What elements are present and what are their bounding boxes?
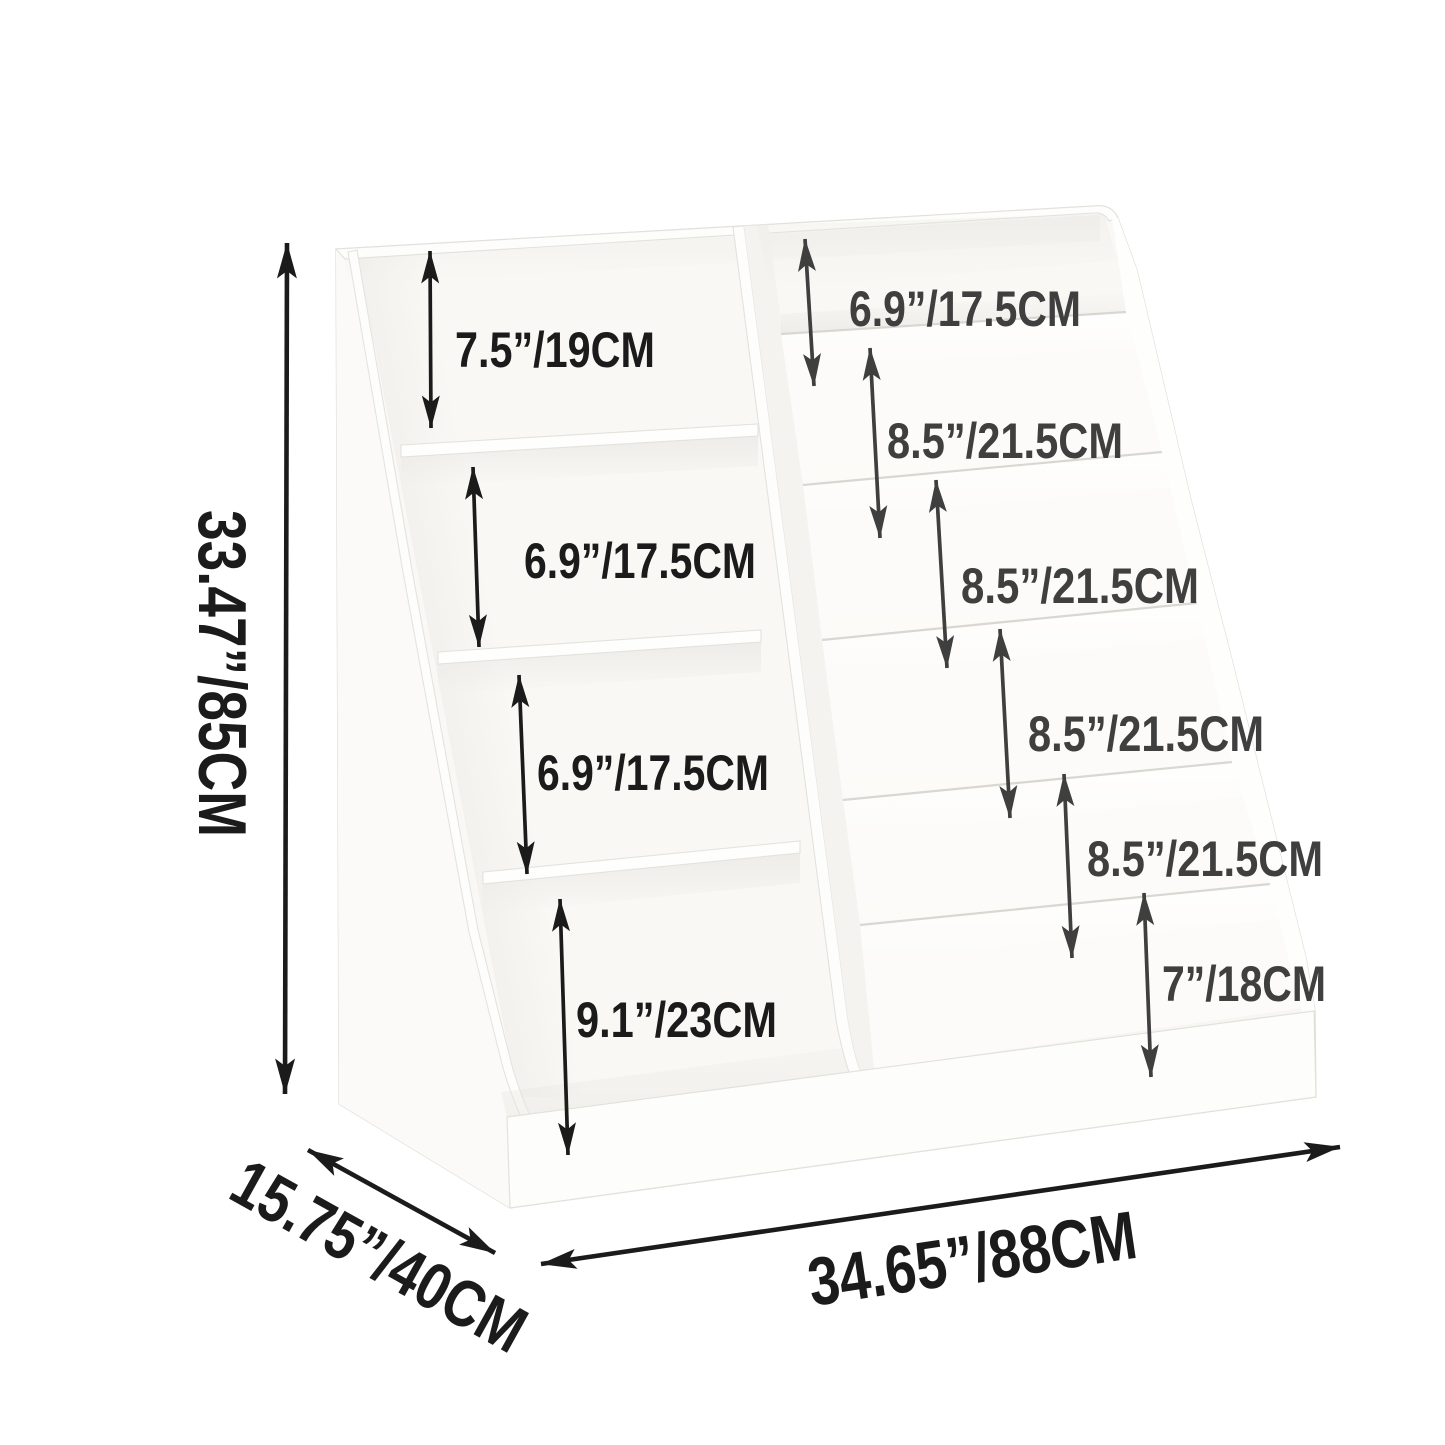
svg-text:8.5”/21.5CM: 8.5”/21.5CM <box>887 413 1123 469</box>
svg-text:7.5”/19CM: 7.5”/19CM <box>455 322 655 378</box>
svg-text:8.5”/21.5CM: 8.5”/21.5CM <box>1028 706 1264 762</box>
svg-text:8.5”/21.5CM: 8.5”/21.5CM <box>1087 831 1323 887</box>
svg-text:6.9”/17.5CM: 6.9”/17.5CM <box>537 745 769 801</box>
svg-text:7”/18CM: 7”/18CM <box>1162 956 1326 1012</box>
svg-text:33.47”/85CM: 33.47”/85CM <box>184 510 260 837</box>
svg-text:9.1”/23CM: 9.1”/23CM <box>576 992 777 1048</box>
svg-text:6.9”/17.5CM: 6.9”/17.5CM <box>524 533 756 589</box>
svg-text:6.9”/17.5CM: 6.9”/17.5CM <box>849 281 1081 337</box>
svg-text:8.5”/21.5CM: 8.5”/21.5CM <box>961 558 1199 614</box>
